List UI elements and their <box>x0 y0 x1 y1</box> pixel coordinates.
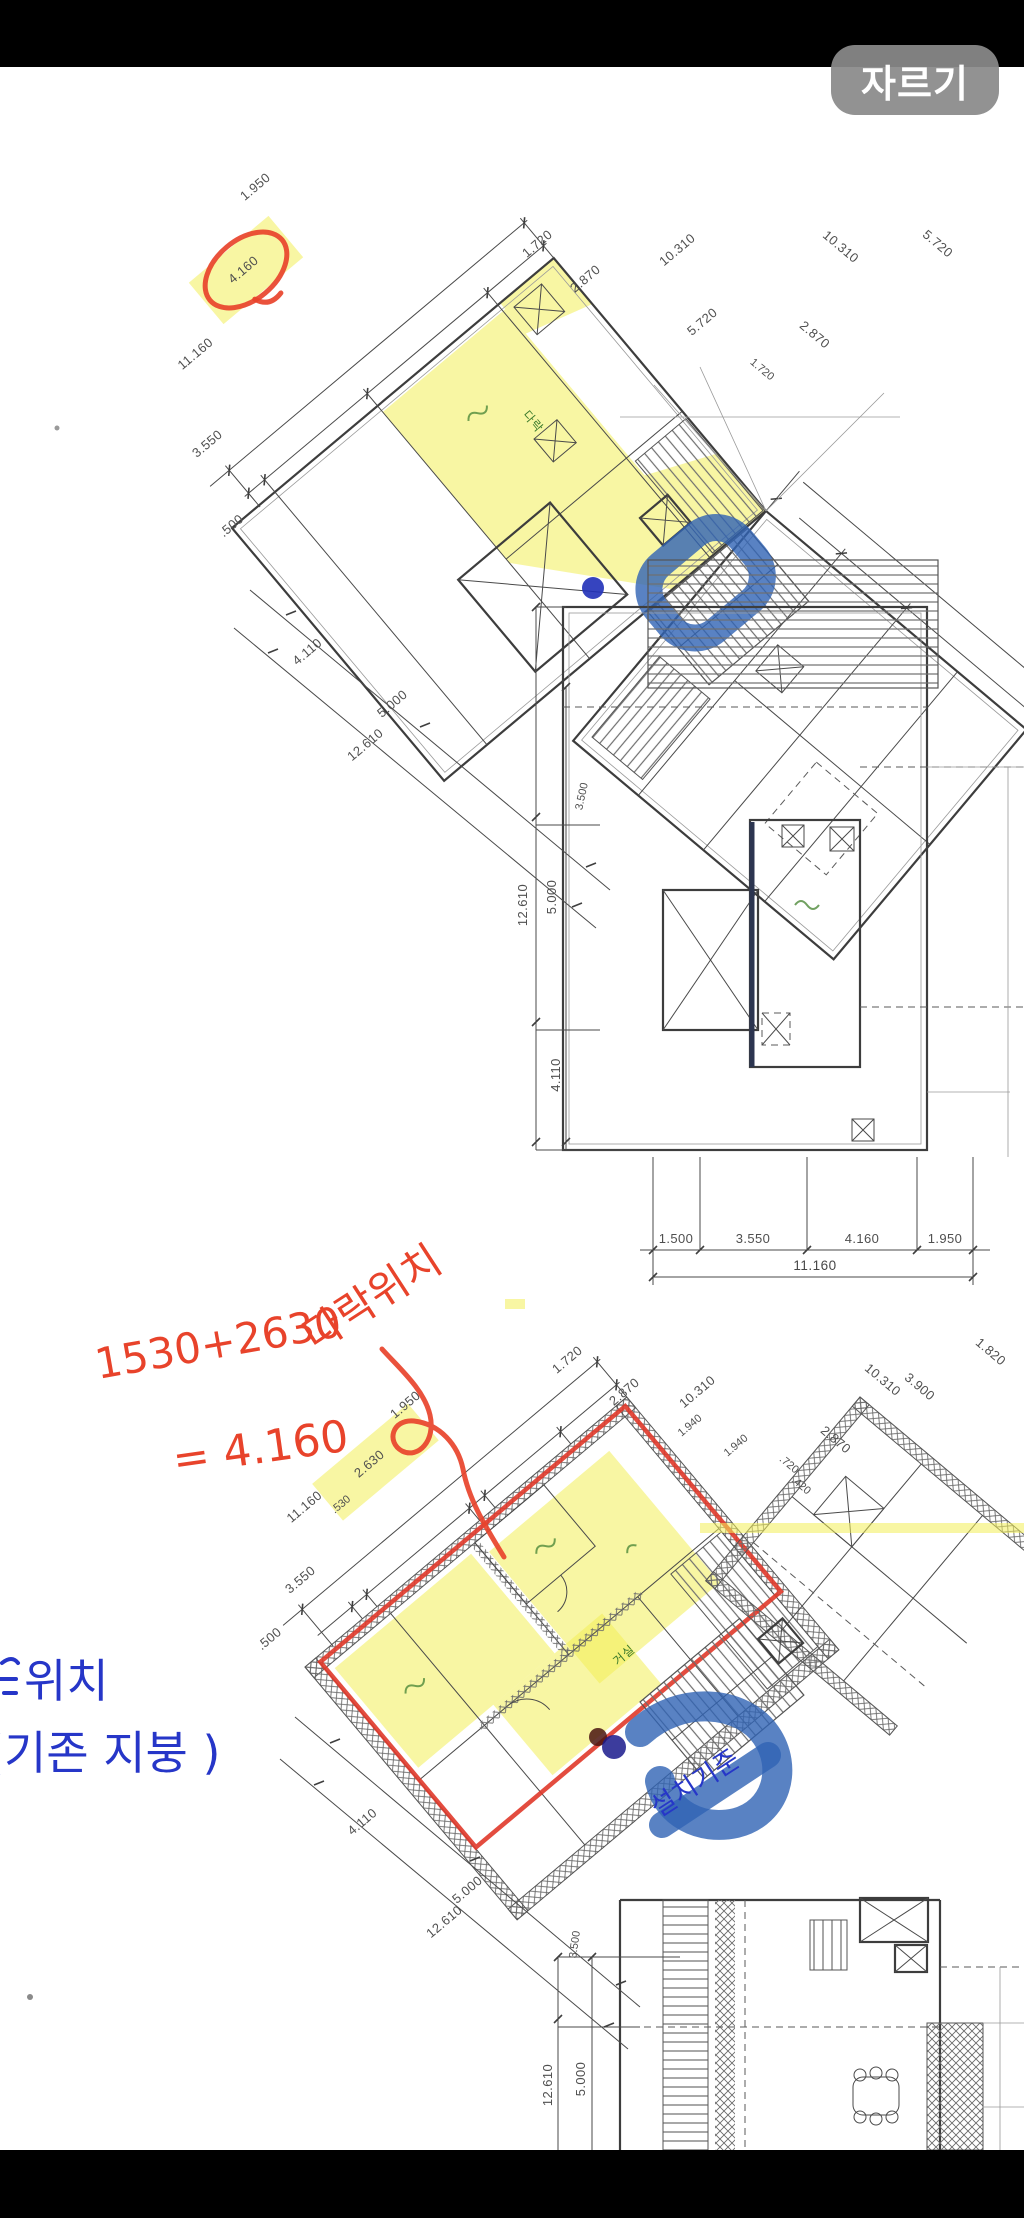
floor-plan-image: 다락 <box>0 67 1024 2150</box>
dim-label: 3.550 <box>736 1231 771 1246</box>
dim-label: 5.720 <box>684 305 720 339</box>
dim-label: 2.870 <box>567 262 603 296</box>
dim-label: 4.110 <box>289 635 324 668</box>
red-circle-annotation <box>187 214 312 335</box>
dim-label: .500 <box>254 1624 284 1653</box>
paper-speck <box>55 426 60 431</box>
dim-label: 5.000 <box>573 2062 588 2097</box>
blue-pen-dot <box>582 577 604 599</box>
red-note-calc: 1530+2630 <box>91 1297 345 1388</box>
dim-label: 12.610 <box>423 1902 465 1941</box>
dim-label: 1.720 <box>549 1343 585 1377</box>
dim-label: 3.500 <box>567 1930 583 1959</box>
dim-label: 10.310 <box>656 230 698 269</box>
dim-label: 12.610 <box>344 725 386 764</box>
dim-label: 5.720 <box>920 227 956 261</box>
crop-button[interactable]: 자르기 <box>831 45 999 115</box>
blue-note-partial-glyph <box>0 1659 18 1693</box>
dim-label: 10.310 <box>676 1372 718 1411</box>
paper-speck <box>27 1994 33 2000</box>
dim-label: 10.310 <box>862 1360 904 1399</box>
roof-plan: 다락 <box>175 170 1024 1285</box>
dim-label: 5.000 <box>449 1873 485 1907</box>
dim-label: 4.110 <box>548 1058 563 1092</box>
dim-label: 1.720 <box>519 227 555 261</box>
dim-label: 3.500 <box>573 782 590 811</box>
dim-label: 1.950 <box>928 1231 963 1246</box>
dim-label: 5.000 <box>374 687 410 721</box>
roof-center-block <box>563 560 1024 1157</box>
dim-label: 1.950 <box>237 170 273 204</box>
floor-lower-block <box>620 1898 1024 2150</box>
dim-label: 10.310 <box>820 227 862 266</box>
dim-label: 4.110 <box>344 1805 379 1838</box>
dim-label: 3.900 <box>902 1370 938 1404</box>
dim-label-total: 11.160 <box>793 1258 836 1273</box>
dim-label: .500 <box>216 511 246 540</box>
dim-label: 5.000 <box>544 880 559 915</box>
dim-label: 1.720 <box>748 356 777 383</box>
dim-label: 1.940 <box>676 1412 705 1439</box>
dim-label: 3.550 <box>282 1563 318 1597</box>
blue-note-line2: (기존 지붕 ) <box>0 1726 220 1780</box>
dim-label: 4.160 <box>845 1231 880 1246</box>
dim-label: 11.160 <box>175 335 216 373</box>
blue-note-line1: 위치 <box>24 1654 109 1708</box>
floor-plan: 거실 <box>254 1299 1024 2150</box>
dim-label: 1.940 <box>722 1432 751 1459</box>
dim-label: 1.820 <box>973 1335 1009 1369</box>
dim-label: 1.500 <box>659 1231 694 1246</box>
dim-label: 12.610 <box>540 2064 555 2106</box>
dim-label: 12.610 <box>515 884 530 926</box>
dim-label: 2.870 <box>797 318 833 352</box>
dim-label: 3.550 <box>189 427 225 461</box>
dim-label: 11.160 <box>284 1488 325 1526</box>
blue-pen-dot <box>602 1735 626 1759</box>
document-canvas[interactable]: 다락 <box>0 67 1024 2150</box>
bottom-bar <box>0 2150 1024 2218</box>
